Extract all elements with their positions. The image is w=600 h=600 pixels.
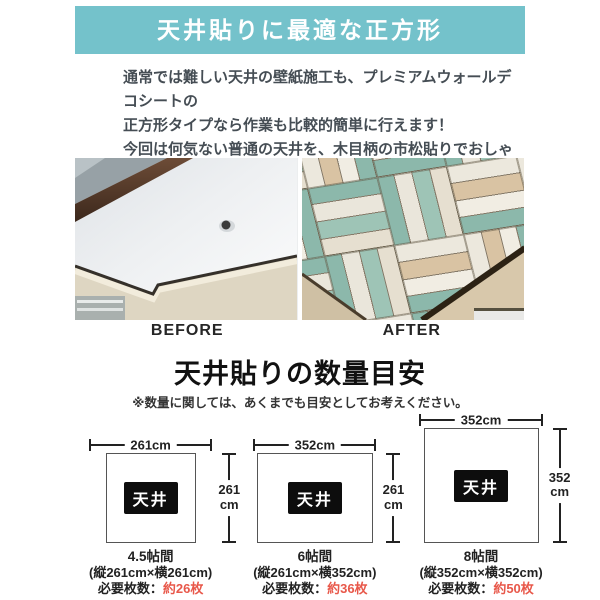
room-size-label: 6帖間 [298,549,333,565]
ceiling-label-badge: 天井 [124,482,178,514]
sheets-label-text: 必要枚数： [262,581,327,596]
photo-labels-row: BEFORE AFTER [75,322,524,340]
quantity-section-heading: 天井貼りの数量目安 [0,352,600,391]
ceiling-detector-dot [222,221,231,230]
height-dimension-arrow: 261cm [386,453,400,543]
after-label: AFTER [300,322,525,340]
diagram-6-tatami: 352cm 天井 261cm 6帖間 (縦261cm×横352cm) 必要枚数：… [253,439,376,597]
height-value: 261 [383,482,405,497]
before-label: BEFORE [75,322,300,340]
sheets-required-label: 必要枚数：約36枚 [262,580,367,597]
room-dimensions-label: (縦352cm×横352cm) [419,565,542,580]
room-size-label: 4.5帖間 [128,549,174,565]
sheets-label-text: 必要枚数： [98,581,163,596]
sheets-required-label: 必要枚数：約50枚 [428,580,533,597]
height-unit: cm [550,485,569,500]
ceiling-outline: 天井 [424,428,539,543]
width-dimension-label: 261cm [124,439,176,452]
height-value: 261 [218,482,240,497]
sheets-count-value: 約26枚 [163,581,203,596]
before-photo [75,158,298,320]
width-dimension-arrow: 352cm [253,439,376,451]
ceiling-label-badge: 天井 [288,482,342,514]
diagram-8-tatami: 352cm 天井 352cm 8帖間 (縦352cm×横352cm) 必要枚数：… [419,414,542,597]
ceiling-size-diagrams: 261cm 天井 261cm 4.5帖間 (縦261cm×横261cm) 必要枚… [89,414,543,597]
height-unit: cm [220,497,239,512]
room-size-label: 8帖間 [464,549,499,565]
height-dimension-label: 261cm [216,480,242,516]
height-dimension-arrow: 352cm [553,428,567,543]
section-banner-title: 天井貼りに最適な正方形 [75,6,525,54]
height-value: 352 [549,470,571,485]
width-dimension-arrow: 352cm [419,414,542,426]
sheets-required-label: 必要枚数：約26枚 [98,580,203,597]
sheets-label-text: 必要枚数： [428,581,493,596]
ceiling-outline: 天井 [106,453,196,543]
height-dimension-arrow: 261cm [222,453,236,543]
product-infographic-page: 天井貼りに最適な正方形 通常では難しい天井の壁紙施工も、プレミアムウォールデコシ… [0,0,600,600]
width-dimension-label: 352cm [289,439,341,452]
height-dimension-label: 261cm [381,480,407,516]
sheets-count-value: 約50枚 [493,581,533,596]
height-dimension-label: 352cm [547,468,573,504]
diagram-4-5-tatami: 261cm 天井 261cm 4.5帖間 (縦261cm×横261cm) 必要枚… [89,439,212,597]
before-after-comparison [75,158,524,320]
quantity-section-note: ※数量に関しては、あくまでも目安としてお考えください。 [0,392,600,411]
room-dimensions-label: (縦261cm×横261cm) [89,565,212,580]
ceiling-label-badge: 天井 [454,470,508,502]
height-unit: cm [384,497,403,512]
after-photo-walls [302,158,525,320]
sheets-count-value: 約36枚 [327,581,367,596]
width-dimension-label: 352cm [455,414,507,427]
intro-line: 通常では難しい天井の壁紙施工も、プレミアムウォールデコシートの [123,66,523,114]
ceiling-outline: 天井 [257,453,373,543]
width-dimension-arrow: 261cm [89,439,212,451]
intro-line: 正方形タイプなら作業も比較的簡単に行えます！ [123,114,523,138]
room-dimensions-label: (縦261cm×横352cm) [253,565,376,580]
before-photo-illustration [75,158,297,320]
after-photo [302,158,525,320]
